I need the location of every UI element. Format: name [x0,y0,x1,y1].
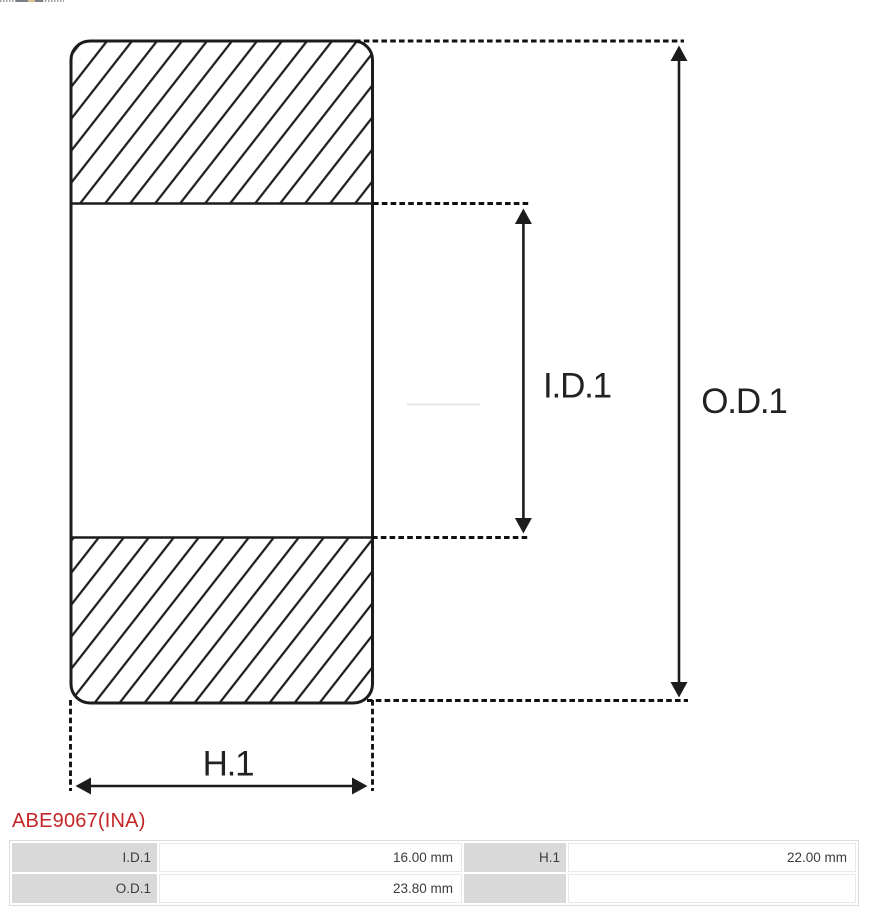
svg-text:I.D.1: I.D.1 [543,367,611,406]
svg-text:O.D.1: O.D.1 [701,382,786,421]
svg-text:H.1: H.1 [203,745,254,784]
